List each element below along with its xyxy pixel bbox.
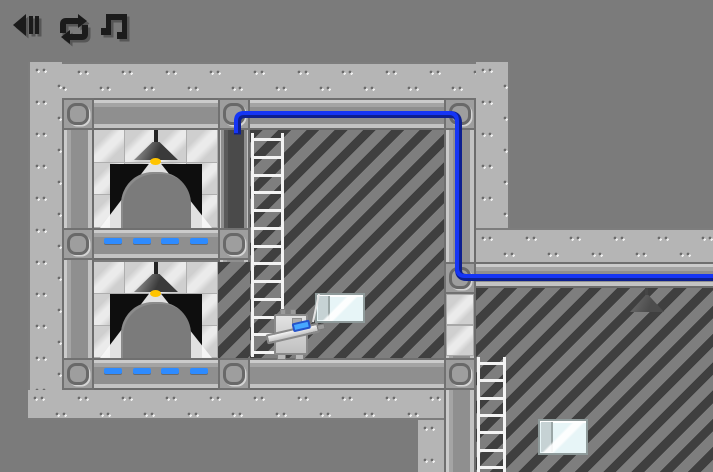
power-wire [0, 0, 713, 472]
back-button[interactable] [12, 13, 42, 41]
tractor-beam [313, 294, 319, 322]
restart-button[interactable] [55, 12, 95, 48]
game-viewport [0, 0, 713, 472]
restart-icon [55, 12, 95, 48]
music-note-icon [101, 12, 133, 44]
back-icon [12, 13, 42, 41]
music-button[interactable] [101, 12, 133, 44]
